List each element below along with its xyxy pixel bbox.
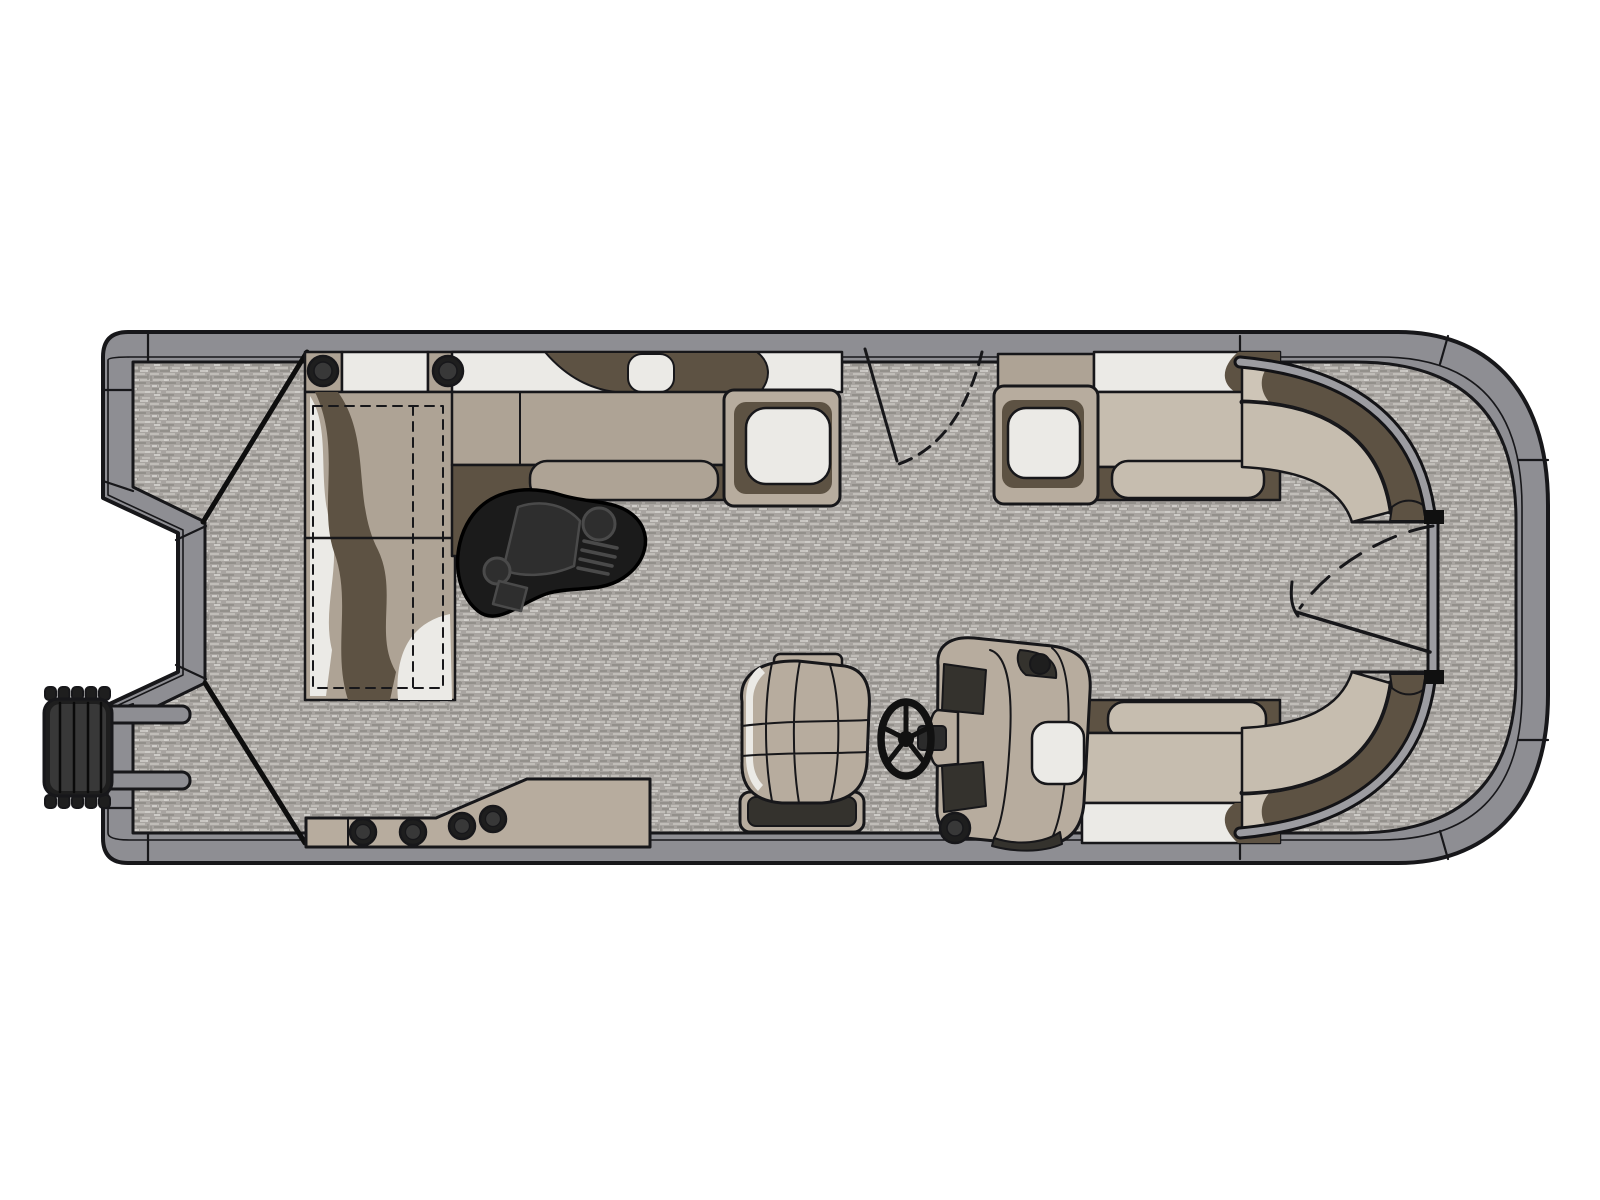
- armrest-pad: [1008, 408, 1080, 478]
- armrest-port-bow: [994, 386, 1098, 504]
- pontoon-floorplan-canvas: [0, 0, 1600, 1200]
- console-panel: [942, 664, 986, 714]
- backrest-accent-white: [628, 354, 674, 392]
- floorplan-svg: [0, 0, 1600, 1200]
- captain-chair: [740, 654, 869, 832]
- helm-console: [929, 638, 1090, 851]
- chair-seat: [742, 661, 870, 803]
- armrest-port-aft: [724, 390, 840, 506]
- backrest-strip: [342, 352, 428, 392]
- companion-pad: [1032, 722, 1084, 784]
- port-aft-bench-seat: [452, 392, 728, 465]
- table-detail: [493, 581, 527, 611]
- cupholder-icon: [583, 508, 615, 540]
- console-panel: [942, 762, 986, 812]
- armrest-pad: [746, 408, 830, 484]
- cupholder-icon: [484, 558, 510, 584]
